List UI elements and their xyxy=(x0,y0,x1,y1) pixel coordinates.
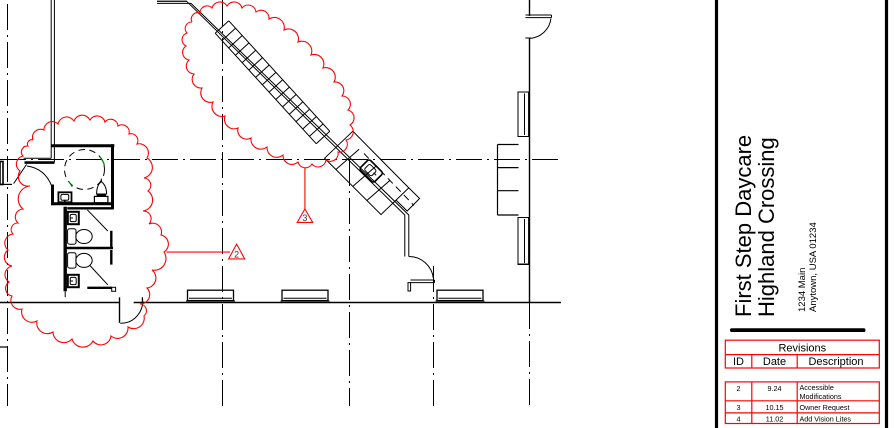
svg-text:Anytown, USA 01234: Anytown, USA 01234 xyxy=(808,222,819,312)
svg-text:10.15: 10.15 xyxy=(766,403,784,412)
svg-text:Description: Description xyxy=(808,356,863,368)
svg-text:ID: ID xyxy=(733,356,744,368)
svg-text:Modifications: Modifications xyxy=(800,392,842,401)
svg-text:Owner Request: Owner Request xyxy=(800,403,850,412)
svg-text:2: 2 xyxy=(737,384,741,393)
svg-text:11.02: 11.02 xyxy=(766,414,783,423)
svg-text:2: 2 xyxy=(234,249,239,259)
svg-text:3: 3 xyxy=(302,213,307,223)
svg-text:Date: Date xyxy=(763,356,786,368)
svg-text:4: 4 xyxy=(737,414,741,423)
svg-text:Accessible: Accessible xyxy=(800,383,834,392)
svg-text:First Step Daycare: First Step Daycare xyxy=(731,135,756,317)
svg-text:Add Vision Lites: Add Vision Lites xyxy=(800,414,852,423)
svg-text:1234 Main: 1234 Main xyxy=(797,268,808,312)
svg-text:9.24: 9.24 xyxy=(768,384,782,393)
svg-text:Highland Crossing: Highland Crossing xyxy=(754,137,779,317)
svg-text:Revisions: Revisions xyxy=(778,343,826,355)
svg-text:3: 3 xyxy=(737,403,741,412)
